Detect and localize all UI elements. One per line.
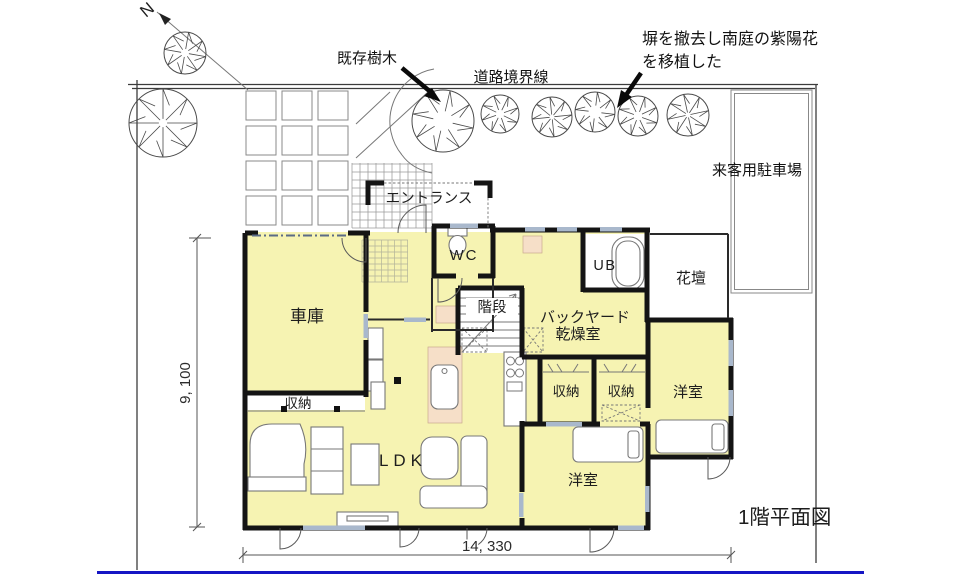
shelf-icon (311, 427, 343, 494)
dimension-horizontal: 14, 330 (239, 538, 735, 563)
tree-icon (667, 94, 709, 136)
flower-bed-label: 花壇 (676, 269, 706, 287)
floor-plan-drawing: N 道路境界線 来客用駐車場 既存樹木 塀を撤去し南庭の紫陽花 を移植した エン… (0, 0, 960, 580)
storage-left-label: 収納 (285, 396, 312, 411)
tree-icon (575, 92, 615, 132)
western-room-bottom-label: 洋室 (568, 472, 598, 489)
cabinet-icon (371, 382, 385, 409)
tree-icon (129, 89, 197, 157)
bathtub-icon (612, 237, 644, 290)
entrance-label: エントランス (386, 191, 473, 207)
storage-right-label: 収納 (608, 384, 635, 399)
road-boundary-label: 道路境界線 (473, 68, 548, 86)
ldk-label: LDK (379, 451, 427, 470)
bed-icon (656, 420, 728, 453)
visitor-parking-area (731, 90, 812, 293)
stairs-label: 階段 (478, 299, 507, 316)
piano-icon (250, 424, 306, 477)
wc-label: WC (450, 247, 479, 264)
ub-label: UB (593, 258, 616, 274)
driveway-paving (246, 91, 348, 225)
floor-plan-page: N 道路境界線 来客用駐車場 既存樹木 塀を撤去し南庭の紫陽花 を移植した エン… (0, 0, 960, 580)
piano-keyboard (248, 477, 306, 491)
western-room-right-label: 洋室 (673, 384, 703, 401)
north-label: N (136, 0, 158, 21)
page-title: 1階平面図 (738, 506, 831, 529)
washbasin-icon (436, 306, 458, 323)
tree-icon (412, 90, 474, 152)
garage-label: 車庫 (290, 307, 324, 326)
tree-icon (532, 97, 572, 137)
tree-icon (481, 95, 519, 133)
dimension-horizontal-value: 14, 330 (462, 538, 512, 555)
bed-icon (573, 427, 643, 462)
backyard-label-1: バックヤード (540, 309, 630, 326)
dimension-vertical-value: 9, 100 (177, 362, 194, 404)
side-table-icon (351, 444, 379, 485)
tv-board-icon (337, 512, 398, 526)
fence-note-line2: を移植した (642, 53, 722, 71)
existing-tree-label: 既存樹木 (337, 50, 397, 67)
visitor-parking-label: 来客用駐車場 (712, 162, 802, 179)
washbasin-icon (523, 236, 542, 253)
cabinet-icon (368, 328, 383, 359)
backyard-label-2: 乾燥室 (555, 326, 600, 343)
storage-center-label: 収納 (553, 384, 580, 399)
dimension-vertical: 9, 100 (177, 234, 211, 531)
fence-note-line1: 塀を撤去し南庭の紫陽花 (642, 30, 818, 48)
north-arrow-icon: N (136, 0, 248, 90)
